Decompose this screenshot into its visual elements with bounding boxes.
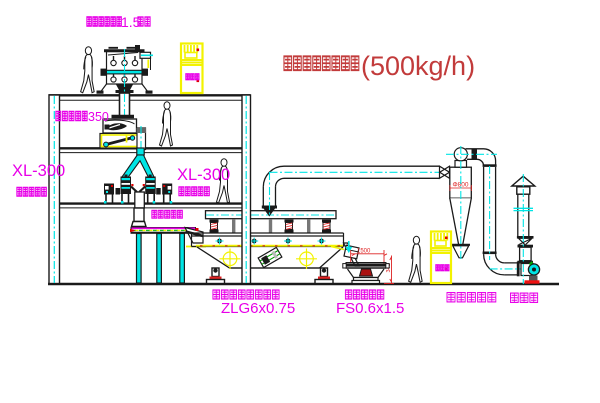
svg-text:XL-300: XL-300 (12, 162, 65, 180)
svg-text:ZLG6x0.75: ZLG6x0.75 (221, 300, 295, 317)
svg-text:1500: 1500 (357, 249, 371, 255)
svg-text:XL-300: XL-300 (177, 166, 230, 184)
svg-text:FS0.6x1.5: FS0.6x1.5 (336, 300, 404, 317)
svg-text:350: 350 (88, 110, 109, 124)
svg-text:(500kg/h): (500kg/h) (361, 51, 475, 81)
